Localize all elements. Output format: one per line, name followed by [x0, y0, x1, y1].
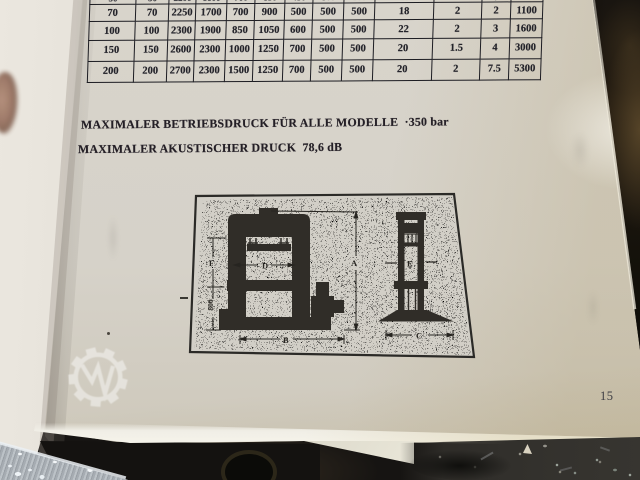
svg-text:C: C: [416, 331, 422, 341]
svg-text:E: E: [407, 259, 413, 269]
svg-text:F: F: [209, 259, 214, 268]
svg-text:D: D: [262, 261, 268, 271]
svg-text:B: B: [283, 335, 289, 345]
svg-text:A: A: [351, 258, 358, 268]
svg-text:800: 800: [206, 299, 215, 311]
